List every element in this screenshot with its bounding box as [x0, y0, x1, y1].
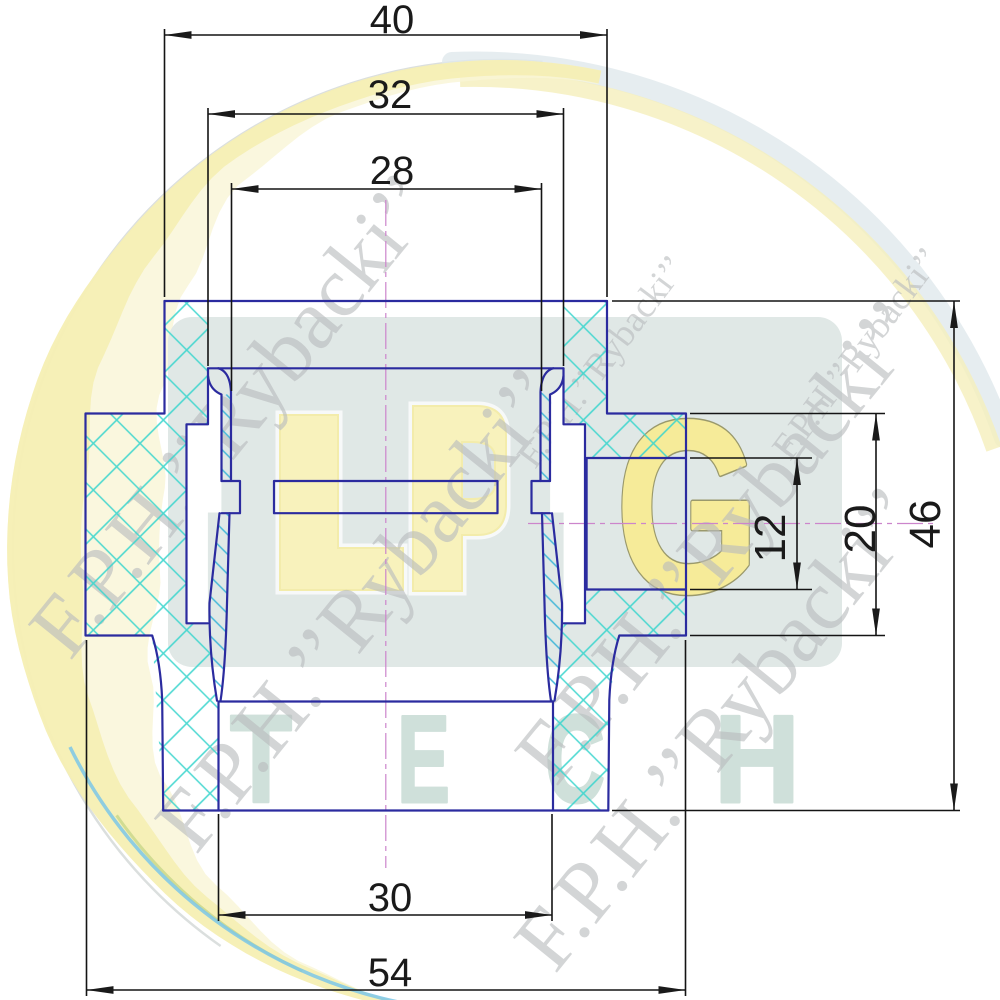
- svg-text:54: 54: [368, 951, 413, 995]
- svg-text:46: 46: [901, 500, 950, 549]
- svg-text:28: 28: [370, 149, 415, 193]
- svg-text:32: 32: [368, 73, 413, 117]
- svg-text:30: 30: [368, 876, 413, 920]
- svg-text:E: E: [397, 691, 450, 829]
- svg-text:12: 12: [746, 514, 795, 563]
- svg-text:40: 40: [370, 0, 415, 42]
- svg-text:20: 20: [836, 505, 885, 554]
